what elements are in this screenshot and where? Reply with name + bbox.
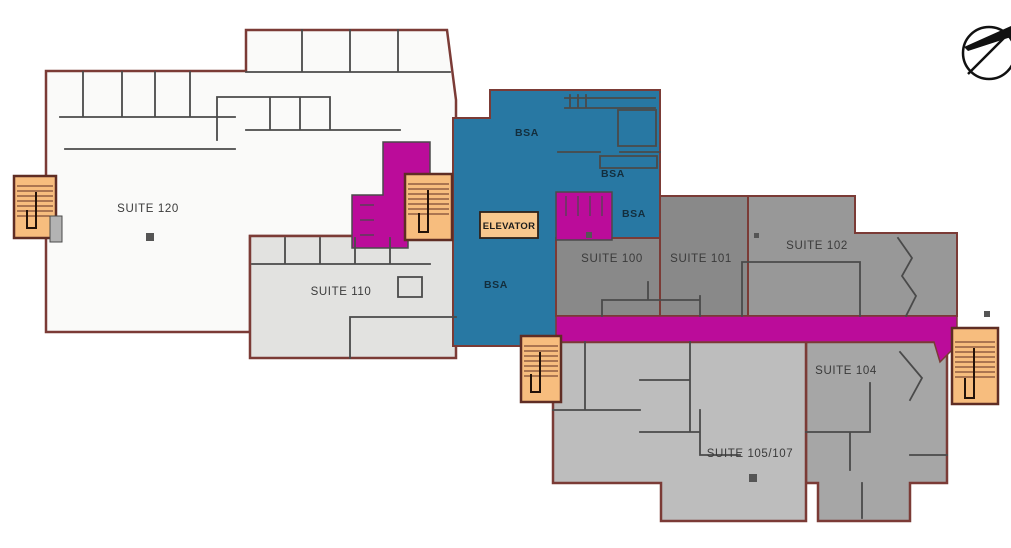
floor-plan-drawing: ELEVATOR SUITE 120 SUITE 110 SUITE 100 S… <box>0 0 1011 548</box>
column-marker <box>146 233 154 241</box>
elevator: ELEVATOR <box>480 212 538 238</box>
suite-120-label: SUITE 120 <box>117 203 179 215</box>
wall-pier <box>50 216 62 242</box>
north-arrow-icon <box>963 26 1011 79</box>
column-marker <box>984 311 990 317</box>
floor-plan: ELEVATOR SUITE 120 SUITE 110 SUITE 100 S… <box>0 0 1011 548</box>
stairwell-center <box>405 174 452 240</box>
suite-100-label: SUITE 100 <box>581 253 643 265</box>
bsa-label-1: BSA <box>515 127 539 139</box>
suite-100-area <box>556 238 660 316</box>
restroom-block-area <box>556 192 612 240</box>
elevator-label: ELEVATOR <box>483 221 536 232</box>
column-marker <box>749 474 757 482</box>
stairwell-south <box>521 336 561 402</box>
suite-101-label: SUITE 101 <box>670 253 732 265</box>
column-marker <box>754 233 759 238</box>
suite-102-label: SUITE 102 <box>786 240 848 252</box>
suite-102-area <box>748 196 957 316</box>
suite-110-label: SUITE 110 <box>311 286 372 298</box>
suite-105-107-label: SUITE 105/107 <box>707 448 793 460</box>
stairwell-east <box>952 328 998 404</box>
bsa-label-3: BSA <box>622 208 646 220</box>
column-marker <box>586 232 592 238</box>
bsa-label-2: BSA <box>601 168 625 180</box>
bsa-label-4: BSA <box>484 279 508 291</box>
suite-104-label: SUITE 104 <box>815 365 877 377</box>
